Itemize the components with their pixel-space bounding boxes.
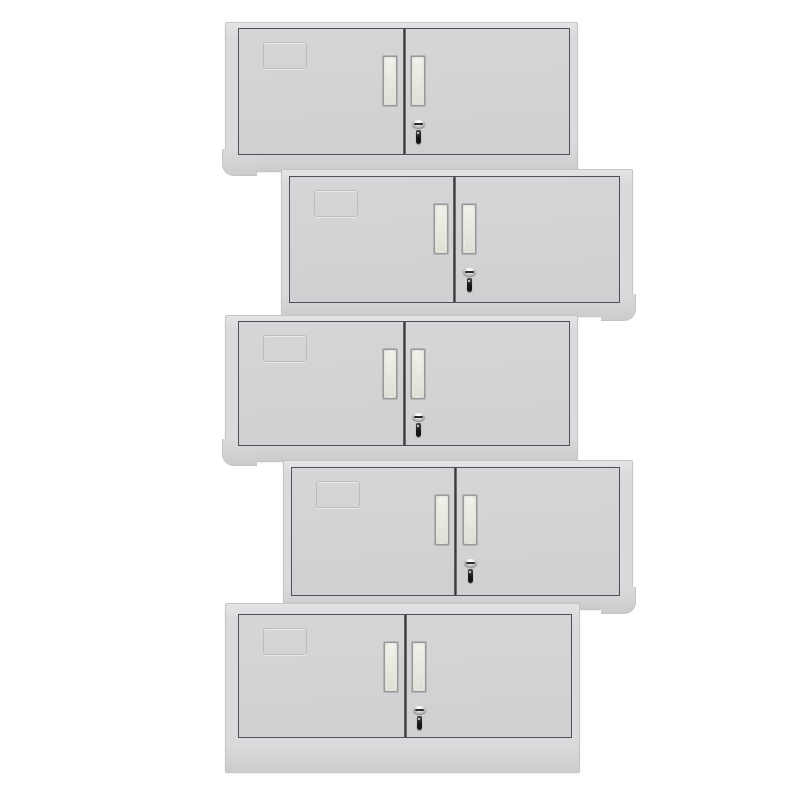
cabinet-right-door: [406, 28, 571, 155]
cabinet-left-door: [238, 321, 403, 446]
cabinet-frame: [226, 604, 579, 772]
cabinet-doors: [238, 28, 570, 155]
door-handle-icon: [411, 56, 425, 106]
cabinet-right-door: [406, 321, 571, 446]
key-icon: [468, 569, 473, 583]
door-handle-icon: [383, 349, 397, 399]
cabinet-left-door: [238, 614, 404, 738]
cabinet: [225, 603, 580, 773]
door-handle-icon: [462, 204, 476, 254]
door-handle-icon: [435, 495, 449, 545]
label-card-holder: [316, 481, 360, 508]
door-handle-icon: [383, 56, 397, 106]
label-card-holder: [263, 335, 307, 362]
key-icon: [416, 130, 421, 144]
door-handle-icon: [463, 495, 477, 545]
lock-icon: [412, 413, 425, 421]
lock-icon: [463, 268, 476, 276]
cabinet: [281, 169, 633, 317]
cabinet: [225, 22, 578, 172]
lock-icon: [464, 559, 477, 567]
cabinet: [283, 460, 633, 610]
cabinet-left-door: [238, 28, 403, 155]
cabinet-right-door: [407, 614, 573, 738]
product-photo: [0, 0, 800, 800]
cabinet-doors: [289, 176, 620, 303]
door-handle-icon: [411, 349, 425, 399]
key-icon: [417, 716, 422, 730]
cabinet-right-door: [457, 467, 620, 596]
cabinet: [225, 315, 578, 462]
lock-icon: [413, 706, 426, 714]
key-icon: [416, 423, 421, 437]
key-icon: [467, 278, 472, 292]
label-card-holder: [263, 42, 307, 69]
cabinet-doors: [291, 467, 620, 596]
door-handle-icon: [412, 642, 426, 692]
cabinet-frame: [282, 170, 632, 316]
door-handle-icon: [434, 204, 448, 254]
lock-icon: [412, 120, 425, 128]
label-card-holder: [314, 190, 358, 217]
cabinet-frame: [226, 316, 577, 461]
cabinet-frame: [284, 461, 632, 609]
cabinet-doors: [238, 321, 570, 446]
label-card-holder: [263, 628, 307, 655]
cabinet-doors: [238, 614, 572, 738]
cabinet-left-door: [289, 176, 453, 303]
cabinet-right-door: [456, 176, 620, 303]
door-handle-icon: [384, 642, 398, 692]
cabinet-left-door: [291, 467, 454, 596]
cabinet-frame: [226, 23, 577, 171]
